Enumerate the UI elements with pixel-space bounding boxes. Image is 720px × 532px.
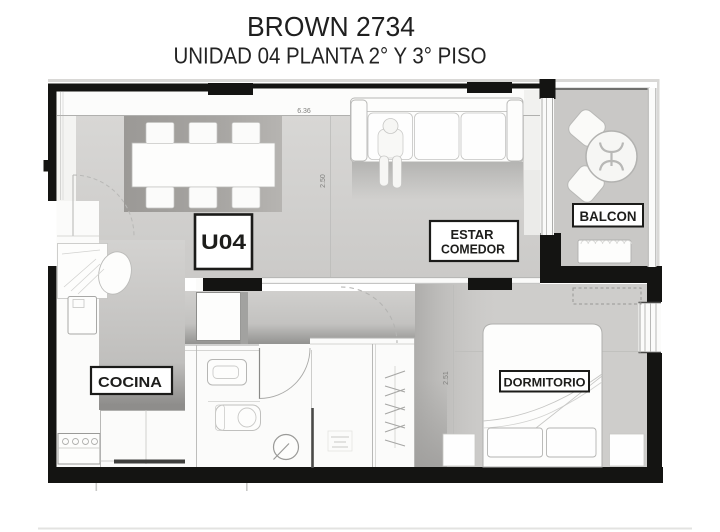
svg-text:ESTAR: ESTAR — [451, 228, 494, 242]
svg-text:UNIDAD 04 PLANTA 2° Y 3° PISO: UNIDAD 04 PLANTA 2° Y 3° PISO — [174, 43, 487, 69]
svg-text:COCINA: COCINA — [98, 374, 162, 391]
svg-text:BALCON: BALCON — [580, 209, 637, 224]
svg-text:2.50: 2.50 — [320, 174, 327, 188]
svg-text:U04: U04 — [201, 231, 246, 254]
svg-text:BROWN 2734: BROWN 2734 — [247, 11, 415, 42]
svg-text:DORMITORIO: DORMITORIO — [504, 376, 586, 390]
svg-text:6.36: 6.36 — [297, 108, 311, 115]
svg-text:2.51: 2.51 — [443, 371, 450, 385]
svg-text:COMEDOR: COMEDOR — [441, 243, 505, 257]
